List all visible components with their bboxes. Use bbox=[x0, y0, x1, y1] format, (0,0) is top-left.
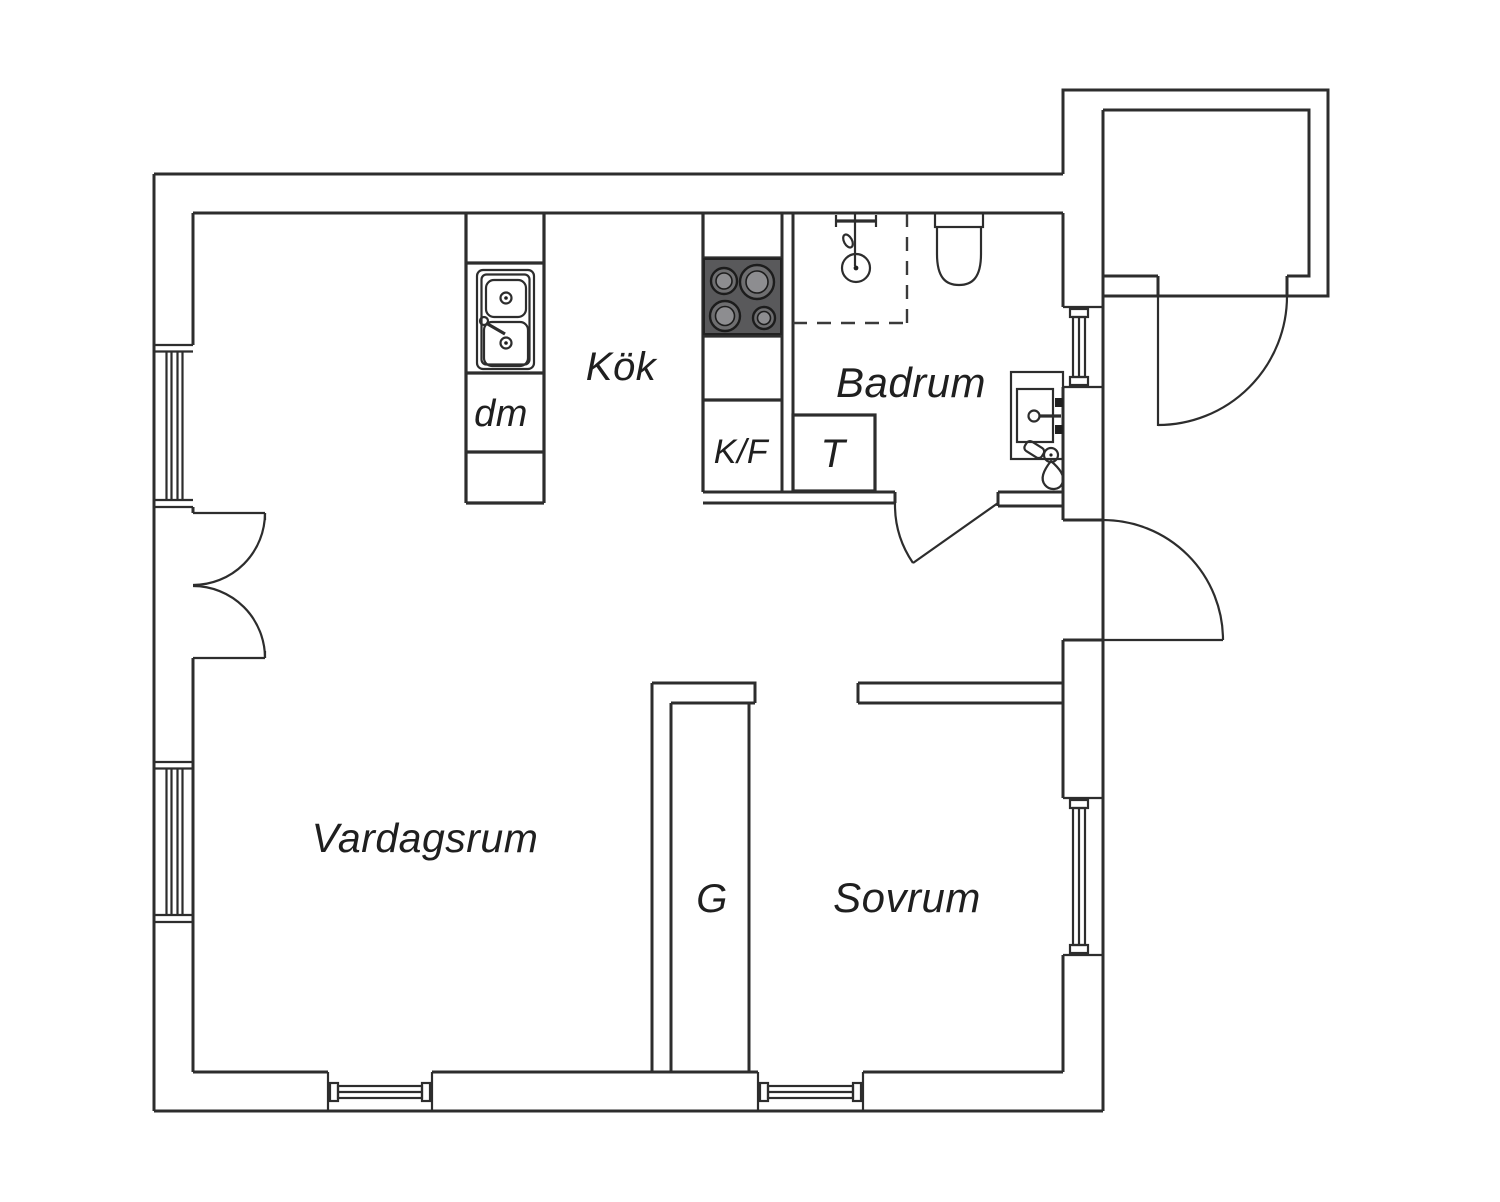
balcony-french-doors bbox=[193, 513, 265, 658]
window-bottom-bedroom bbox=[758, 1072, 863, 1111]
bedroom-wall bbox=[858, 683, 1063, 703]
toilet bbox=[935, 213, 983, 285]
porch-door bbox=[1158, 296, 1287, 426]
shower bbox=[793, 213, 907, 323]
shower-mixer-icon bbox=[841, 233, 855, 249]
entrance-door bbox=[1103, 520, 1223, 640]
exterior-and-interior-walls bbox=[154, 110, 1103, 1111]
stove bbox=[704, 259, 781, 334]
room-label-bedroom: Sovrum bbox=[833, 874, 981, 921]
doors bbox=[193, 296, 1287, 658]
fixture-label-dishwasher: dm bbox=[474, 393, 528, 435]
room-label-bathroom: Badrum bbox=[836, 359, 986, 406]
window-right-bedroom bbox=[1063, 798, 1103, 955]
room-label-kitchen: Kök bbox=[586, 345, 658, 389]
floor-drain-and-brush-icon bbox=[1023, 440, 1063, 489]
window-left-lower bbox=[154, 762, 193, 922]
fixture-label-wardrobe: G bbox=[696, 877, 728, 921]
floor-plan-drawing: Kök Badrum Vardagsrum Sovrum dm K/F T G bbox=[0, 0, 1500, 1202]
window-right-bathroom bbox=[1063, 307, 1103, 387]
window-left-upper bbox=[154, 345, 193, 507]
room-label-living-room: Vardagsrum bbox=[312, 815, 539, 861]
floor-plan-page: Kök Badrum Vardagsrum Sovrum dm K/F T G bbox=[0, 0, 1500, 1202]
fixture-label-fridge-freezer: K/F bbox=[714, 433, 770, 471]
fixture-label-washer: T bbox=[821, 432, 848, 476]
kitchen-sink bbox=[477, 270, 534, 369]
windows bbox=[154, 307, 1103, 1111]
window-bottom-living bbox=[328, 1072, 432, 1111]
room-labels: Kök Badrum Vardagsrum Sovrum dm K/F T G bbox=[312, 345, 986, 921]
bathroom-door bbox=[895, 503, 998, 563]
